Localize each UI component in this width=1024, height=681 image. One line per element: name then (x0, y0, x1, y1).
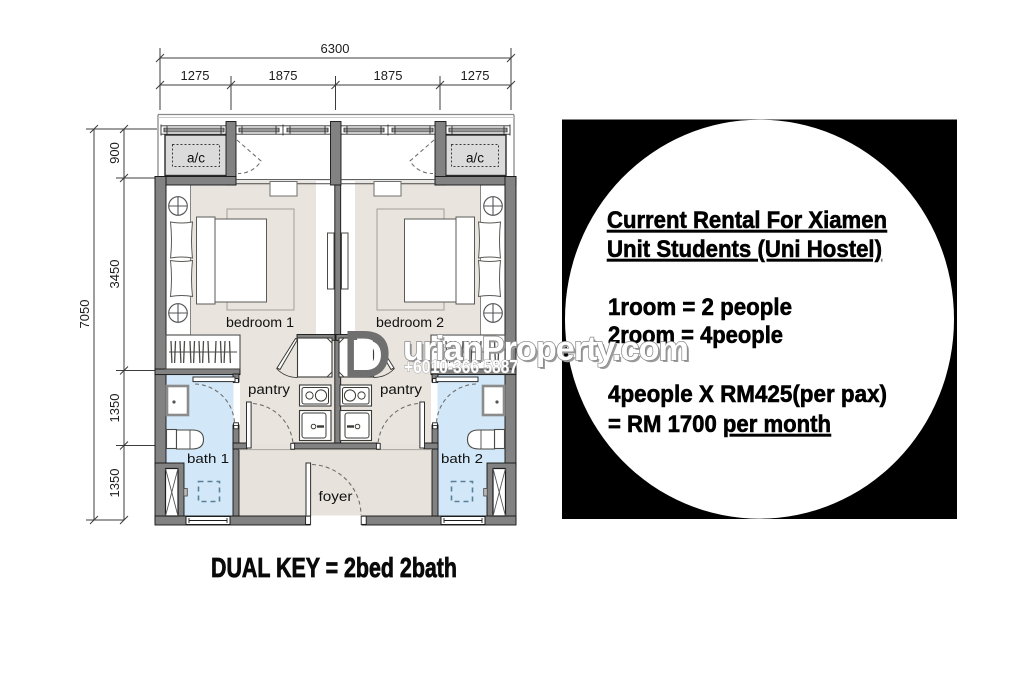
svg-text:1875: 1875 (269, 68, 298, 83)
svg-text:DUAL KEY = 2bed 2bath: DUAL KEY = 2bed 2bath (211, 552, 457, 583)
svg-text:4people X RM425(per pax): 4people X RM425(per pax) (608, 381, 887, 408)
svg-text:1875: 1875 (374, 68, 403, 83)
svg-text:a/c: a/c (187, 151, 205, 166)
svg-text:1room = 2 people: 1room = 2 people (608, 294, 792, 321)
svg-text:1350: 1350 (107, 469, 122, 498)
svg-text:bath 1: bath 1 (187, 452, 229, 466)
svg-text:foyer: foyer (319, 489, 354, 504)
svg-text:6300: 6300 (321, 41, 350, 56)
svg-text:= RM 1700 per month: = RM 1700 per month (608, 411, 831, 438)
svg-text:Unit Students (Uni Hostel): Unit Students (Uni Hostel) (607, 236, 882, 263)
svg-text:D: D (351, 331, 383, 380)
svg-text:+6010-366 5887: +6010-366 5887 (404, 357, 518, 377)
svg-text:1350: 1350 (107, 394, 122, 423)
svg-text:900: 900 (107, 142, 122, 164)
svg-text:bath 2: bath 2 (441, 452, 483, 466)
svg-text:3450: 3450 (107, 260, 122, 289)
svg-text:1275: 1275 (461, 68, 490, 83)
svg-text:pantry: pantry (248, 382, 290, 397)
svg-text:Current Rental For Xiamen: Current Rental For Xiamen (607, 207, 887, 234)
svg-text:bedroom 1: bedroom 1 (226, 315, 294, 330)
svg-text:a/c: a/c (466, 151, 484, 166)
svg-text:7050: 7050 (77, 300, 92, 329)
svg-text:1275: 1275 (181, 68, 210, 83)
